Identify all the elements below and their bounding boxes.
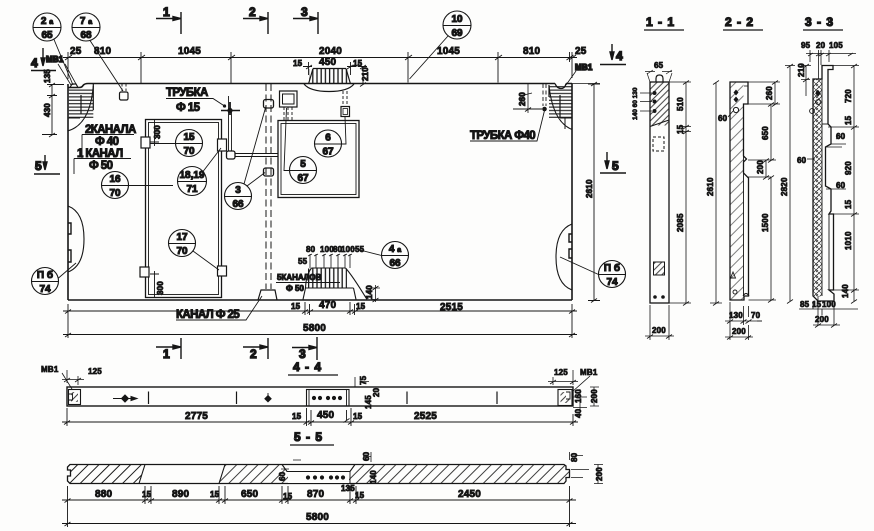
svg-text:5: 5 xyxy=(35,159,43,173)
svg-text:ТРУБКА Ф40: ТРУБКА Ф40 xyxy=(470,130,535,142)
svg-text:100: 100 xyxy=(822,300,836,309)
svg-text:200: 200 xyxy=(756,160,765,174)
svg-text:140 60 130: 140 60 130 xyxy=(632,87,639,120)
svg-text:15: 15 xyxy=(812,300,822,309)
svg-text:5800: 5800 xyxy=(303,323,326,334)
svg-text:140: 140 xyxy=(365,285,374,299)
svg-text:650: 650 xyxy=(761,126,770,140)
svg-text:Ф 50: Ф 50 xyxy=(286,284,305,293)
svg-text:4 - 4: 4 - 4 xyxy=(293,360,322,374)
svg-text:95: 95 xyxy=(801,41,811,50)
svg-text:5: 5 xyxy=(612,159,620,173)
svg-text:130: 130 xyxy=(729,311,743,320)
svg-text:2525: 2525 xyxy=(414,411,437,422)
svg-text:15: 15 xyxy=(210,490,220,499)
svg-text:66: 66 xyxy=(389,258,401,269)
svg-text:7 а: 7 а xyxy=(80,16,92,27)
svg-text:40: 40 xyxy=(574,408,583,418)
svg-text:2 - 2: 2 - 2 xyxy=(725,15,754,29)
svg-text:5800: 5800 xyxy=(306,512,329,523)
svg-text:П б: П б xyxy=(604,262,620,274)
svg-text:18,19: 18,19 xyxy=(179,170,204,181)
svg-text:1045: 1045 xyxy=(178,46,201,57)
svg-text:450: 450 xyxy=(319,57,337,68)
svg-text:145: 145 xyxy=(364,395,373,409)
svg-text:15: 15 xyxy=(183,132,195,143)
svg-text:65: 65 xyxy=(654,61,664,70)
svg-text:Ф 50: Ф 50 xyxy=(89,160,113,172)
svg-text:300: 300 xyxy=(156,281,165,295)
svg-text:1500: 1500 xyxy=(761,213,770,232)
svg-text:15: 15 xyxy=(844,115,853,125)
svg-text:200: 200 xyxy=(815,315,829,324)
svg-text:15: 15 xyxy=(353,412,363,421)
svg-text:15: 15 xyxy=(293,59,303,68)
svg-text:69: 69 xyxy=(451,28,463,39)
svg-text:890: 890 xyxy=(172,489,190,500)
svg-text:60: 60 xyxy=(718,114,728,123)
svg-text:5: 5 xyxy=(300,159,306,170)
svg-text:3 - 3: 3 - 3 xyxy=(805,15,834,29)
svg-text:25: 25 xyxy=(575,46,587,57)
svg-text:25: 25 xyxy=(70,46,82,57)
svg-text:2610: 2610 xyxy=(585,179,594,198)
svg-text:260: 260 xyxy=(765,86,774,100)
svg-text:140: 140 xyxy=(369,470,378,484)
svg-text:1: 1 xyxy=(163,347,171,361)
svg-text:260: 260 xyxy=(518,92,527,106)
svg-text:2085: 2085 xyxy=(676,213,685,232)
svg-text:70: 70 xyxy=(109,188,121,199)
svg-text:2610: 2610 xyxy=(706,177,715,196)
svg-text:870: 870 xyxy=(307,489,325,500)
svg-text:МВ1: МВ1 xyxy=(46,55,64,64)
svg-text:100: 100 xyxy=(341,245,355,254)
svg-text:15: 15 xyxy=(355,491,365,500)
svg-text:16: 16 xyxy=(109,174,121,185)
svg-text:60: 60 xyxy=(836,132,846,141)
svg-text:430: 430 xyxy=(43,103,52,117)
svg-text:1 - 1: 1 - 1 xyxy=(646,15,675,29)
svg-text:810: 810 xyxy=(523,46,541,57)
svg-text:60: 60 xyxy=(797,156,807,165)
svg-text:125: 125 xyxy=(554,368,568,377)
svg-text:210: 210 xyxy=(361,67,370,81)
svg-text:60: 60 xyxy=(278,471,287,481)
svg-text:65: 65 xyxy=(41,30,53,41)
svg-text:450: 450 xyxy=(317,410,335,421)
svg-text:880: 880 xyxy=(95,489,113,500)
svg-text:2450: 2450 xyxy=(458,489,481,500)
svg-text:5 - 5: 5 - 5 xyxy=(294,430,323,444)
svg-text:105: 105 xyxy=(829,41,843,50)
svg-text:74: 74 xyxy=(606,277,618,288)
svg-text:15: 15 xyxy=(142,490,152,499)
svg-text:5КАНАЛОВ: 5КАНАЛОВ xyxy=(277,273,322,282)
svg-text:4: 4 xyxy=(31,56,39,70)
svg-text:1045: 1045 xyxy=(437,46,460,57)
svg-text:70: 70 xyxy=(751,311,761,320)
svg-text:80: 80 xyxy=(570,452,579,462)
svg-text:17: 17 xyxy=(176,232,188,243)
svg-text:15: 15 xyxy=(676,124,685,134)
svg-text:П б: П б xyxy=(37,269,53,281)
svg-text:70: 70 xyxy=(176,246,188,257)
svg-text:1010: 1010 xyxy=(844,231,853,250)
svg-text:60: 60 xyxy=(836,181,846,190)
svg-text:70: 70 xyxy=(183,146,195,157)
svg-text:4: 4 xyxy=(616,49,624,63)
svg-text:300: 300 xyxy=(153,125,162,139)
svg-text:20: 20 xyxy=(372,387,381,397)
svg-text:1: 1 xyxy=(163,5,171,19)
svg-text:2515: 2515 xyxy=(440,302,463,313)
svg-text:3: 3 xyxy=(301,5,309,19)
svg-text:720: 720 xyxy=(844,89,853,103)
svg-text:МВ1: МВ1 xyxy=(41,365,59,374)
svg-text:125: 125 xyxy=(88,367,102,376)
svg-text:2: 2 xyxy=(250,347,258,361)
svg-text:66: 66 xyxy=(232,199,244,210)
svg-text:810: 810 xyxy=(94,46,112,57)
svg-text:200: 200 xyxy=(652,326,666,335)
svg-text:15: 15 xyxy=(356,302,366,311)
svg-text:Ф 15: Ф 15 xyxy=(176,102,201,114)
svg-text:4 а: 4 а xyxy=(389,244,401,255)
svg-text:10: 10 xyxy=(451,14,463,25)
svg-text:135: 135 xyxy=(341,484,355,493)
svg-text:210: 210 xyxy=(797,63,806,77)
svg-text:2820: 2820 xyxy=(780,177,789,196)
svg-text:140: 140 xyxy=(841,284,850,298)
svg-text:ТРУБКА: ТРУБКА xyxy=(166,87,208,99)
svg-text:15: 15 xyxy=(291,302,301,311)
svg-text:3: 3 xyxy=(299,347,307,361)
svg-text:68: 68 xyxy=(80,30,92,41)
svg-text:2775: 2775 xyxy=(185,411,208,422)
svg-text:200: 200 xyxy=(590,389,599,403)
svg-text:15: 15 xyxy=(292,412,302,421)
svg-text:200: 200 xyxy=(595,467,604,481)
svg-text:650: 650 xyxy=(241,489,259,500)
svg-text:74: 74 xyxy=(39,284,51,295)
svg-text:15: 15 xyxy=(844,199,853,209)
svg-text:55: 55 xyxy=(298,257,308,266)
svg-text:200: 200 xyxy=(732,327,746,336)
svg-text:470: 470 xyxy=(319,300,337,311)
svg-text:2: 2 xyxy=(249,5,257,19)
svg-text:67: 67 xyxy=(297,173,309,184)
svg-text:75: 75 xyxy=(359,375,368,385)
svg-text:920: 920 xyxy=(844,161,853,175)
svg-text:2 а: 2 а xyxy=(41,16,53,27)
svg-text:85: 85 xyxy=(800,300,810,309)
svg-text:67: 67 xyxy=(322,147,334,158)
svg-text:160: 160 xyxy=(574,389,583,403)
svg-text:МВ1: МВ1 xyxy=(580,368,598,377)
svg-text:Ф 40: Ф 40 xyxy=(95,136,119,148)
svg-text:2040: 2040 xyxy=(319,46,342,57)
svg-text:510: 510 xyxy=(676,97,685,111)
svg-text:6: 6 xyxy=(325,133,331,144)
svg-text:80: 80 xyxy=(306,245,316,254)
svg-text:15: 15 xyxy=(283,492,293,501)
svg-text:3: 3 xyxy=(235,185,241,196)
svg-text:71: 71 xyxy=(186,184,198,195)
svg-text:МВ1: МВ1 xyxy=(575,63,593,72)
svg-text:20: 20 xyxy=(816,41,826,50)
